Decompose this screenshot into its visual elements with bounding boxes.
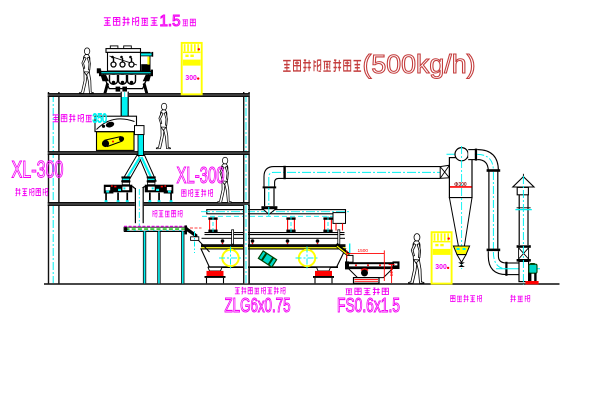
svg-text:1500: 1500 [358,248,369,253]
svg-text:340: 340 [389,267,394,277]
svg-text:(500kg/h): (500kg/h) [363,51,476,79]
svg-text:350: 350 [93,112,108,126]
svg-text:1.5: 1.5 [160,13,181,30]
svg-text:ZLG6x0.75: ZLG6x0.75 [225,295,291,317]
svg-text:XL-300: XL-300 [12,157,64,184]
svg-text:300: 300 [185,73,197,82]
svg-text:Φ300: Φ300 [454,182,467,188]
svg-text:300: 300 [435,262,447,271]
svg-text:FS0.6x1.5: FS0.6x1.5 [337,295,400,317]
svg-text:XL-300: XL-300 [177,162,225,188]
